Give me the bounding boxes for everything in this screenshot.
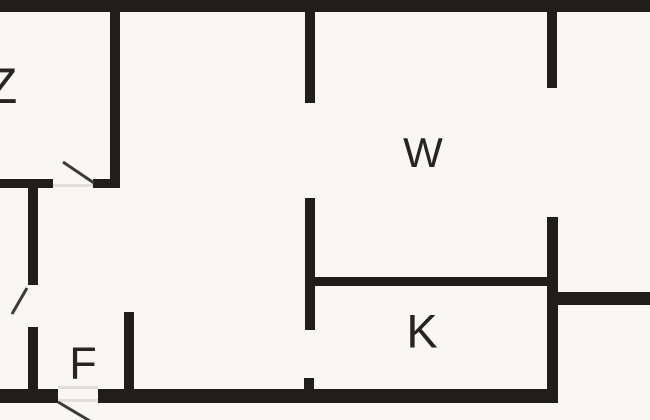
entry-door-swing [58, 402, 90, 420]
room-label-z: Z [0, 61, 17, 111]
floor-plan: ZWKF [0, 0, 650, 420]
side-room-door-swing [12, 288, 27, 314]
room-z-door-swing [63, 162, 94, 183]
room-label-f: F [69, 341, 97, 386]
door-swing-layer [0, 0, 650, 420]
room-label-w: W [403, 132, 443, 174]
room-label-k: K [406, 308, 437, 355]
